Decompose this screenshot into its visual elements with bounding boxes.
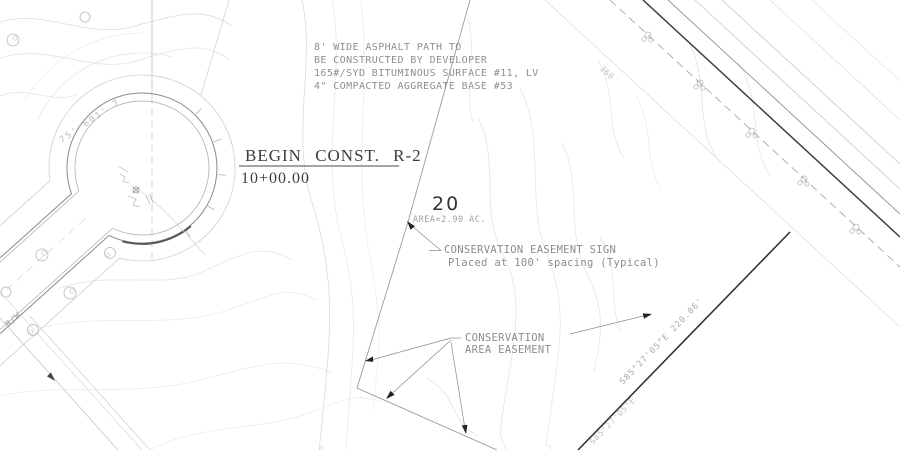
asphalt-note-line3: 165#/SYD BITUMINOUS SURFACE #11, LV	[314, 68, 539, 79]
area-easement-note-line2: AREA EASEMENT	[465, 344, 551, 356]
top-right-corridor	[545, 0, 900, 327]
asphalt-note-line2: BE CONSTRUCTED BY DEVELOPER	[314, 55, 487, 66]
easement-sign-note-line1: CONSERVATION EASEMENT SIGN	[444, 244, 616, 256]
easement-arrow-3	[462, 425, 468, 434]
asphalt-note-line4: 4" COMPACTED AGGREGATE BASE #53	[314, 81, 513, 92]
section-line	[152, 0, 229, 258]
road-line-arrow	[47, 373, 55, 382]
cul-de-sac	[49, 75, 235, 261]
easement-sign-note-line2: Placed at 100' spacing (Typical)	[448, 257, 660, 269]
site-plan-sheet: 8' WIDE ASPHALT PATH TO BE CONSTRUCTED B…	[0, 0, 900, 450]
shrub-symbols	[642, 32, 861, 234]
begin-const-station: 10+00.00	[241, 170, 310, 188]
tree-symbols	[1, 12, 116, 336]
lot20-number: 20	[432, 193, 460, 215]
area-easement-note-line1: CONSERVATION	[465, 332, 544, 344]
begin-const-title: BEGIN CONST. R-2	[245, 146, 422, 166]
asphalt-note-line1: 8' WIDE ASPHALT PATH TO	[314, 42, 462, 53]
lot20-area: AREA=2.90 AC.	[413, 215, 486, 225]
easement-arrow-right	[643, 313, 652, 318]
left-road	[0, 181, 150, 450]
